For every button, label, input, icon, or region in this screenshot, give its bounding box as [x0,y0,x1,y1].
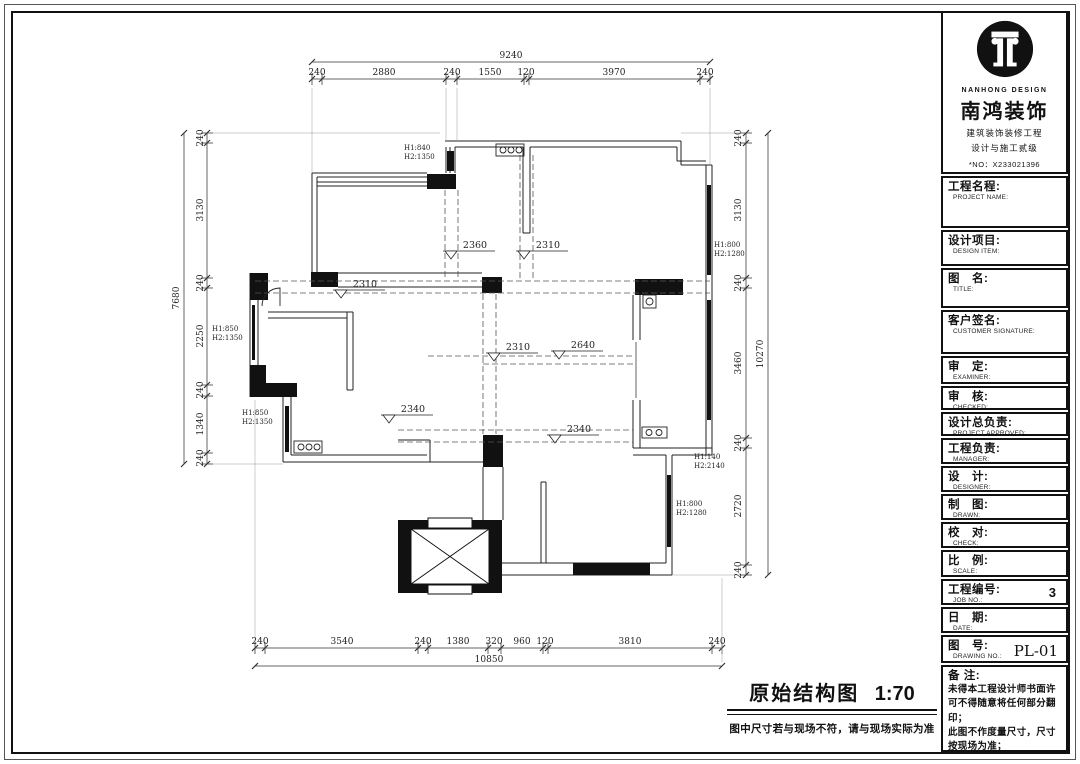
field-label-en: CHECKED: [948,404,1062,410]
field-label-cn: 工程名程: [948,181,1062,194]
dim: 1550 [479,68,502,78]
level-label: 2340 [401,404,425,415]
field-label-cn: 审 核: [948,391,1062,404]
field-label-cn: 设计总负责: [948,417,1062,430]
field-label-cn: 图 名: [948,273,1062,286]
field-label-en: PROJECT NAME: [948,194,1062,202]
fixtures [262,144,667,453]
dim: 3970 [603,68,626,78]
field-label-en: SCALE: [948,568,1062,576]
field-label-cn: 工程编号: [948,584,1062,597]
drawing-title: 原始结构图 1:70 [727,677,937,706]
job-no-value: 3 [1049,585,1056,600]
level-markers: 2360 2310 2310 2310 2640 2340 2340 [333,240,603,443]
cooktop-icon [294,441,322,453]
level-label: 2340 [567,424,591,435]
elevator-shaft [398,518,502,594]
field-label-cn: 客户签名: [948,315,1062,328]
company-logo-box: NANHONG DESIGN 南鸿装饰 建筑装饰装修工程 设计与施工贰级 *NO… [941,11,1068,174]
field-label-cn: 工程负责: [948,443,1062,456]
field-label-cn: 设 计: [948,471,1062,484]
floor-plan: 2360 2310 2310 2310 2640 2340 2340 H1:84… [0,0,1080,764]
dim: 2250 [196,324,206,347]
dim: 240 [414,637,431,647]
level-label: 2310 [536,240,560,251]
height-label: H1:850 [212,325,238,333]
field-check: 校 对: CHECK: [941,522,1068,548]
field-label-en: EXAMINER: [948,374,1062,382]
level-label: 2310 [506,342,530,353]
company-name-en: NANHONG DESIGN [945,87,1064,94]
dim: 240 [196,274,206,291]
field-label-cn: 审 定: [948,361,1062,374]
field-label-cn: 校 对: [948,527,1062,540]
field-job-no: 工程编号: JOB NO.: 3 [941,579,1068,605]
dim: 3130 [196,198,206,221]
field-label-en: MANAGER: [948,456,1062,464]
stove-icon [496,144,524,156]
dim-total-bottom: 10850 [475,655,504,665]
basin-icon [642,427,667,438]
dim: 3810 [619,637,642,647]
dim-total-right: 10270 [756,339,766,368]
height-labels: H1:840 H2:1350 H1:800 H2:1280 H1:850 H2:… [212,144,745,517]
field-drawing-no: 图 号: DRAWING NO.: PL-01 [941,635,1068,663]
field-label-en: DRAWN: [948,512,1062,520]
field-label-en: CHECK: [948,540,1062,548]
dim: 240 [308,68,325,78]
dim: 2880 [373,68,396,78]
field-date: 日 期: DATE: [941,607,1068,633]
field-project-approved: 设计总负责: PROJECT APPROVED: [941,412,1068,436]
dim: 240 [734,274,744,291]
dim: 240 [196,381,206,398]
field-checked: 审 核: CHECKED: [941,386,1068,410]
dim: 240 [196,449,206,466]
field-drawn: 制 图: DRAWN: [941,494,1068,520]
dim: 3130 [734,198,744,221]
company-line1: 建筑装饰装修工程 [945,127,1064,139]
dashed-beam-lines [255,155,710,442]
field-label-cn: 设计项目: [948,235,1062,248]
title-underline [727,709,937,715]
company-line2: 设计与施工贰级 [945,142,1064,154]
field-title: 图 名: TITLE: [941,268,1068,308]
field-label-en: PROJECT APPROVED: [948,430,1062,436]
dim: 240 [696,68,713,78]
concrete-columns [250,151,711,575]
dim: 1340 [196,412,206,435]
field-label-en: TITLE: [948,286,1062,294]
dim: 240 [734,561,744,578]
field-label-cn: 日 期: [948,612,1062,625]
field-label-cn: 制 图: [948,499,1062,512]
dim: 240 [196,129,206,146]
height-label: H1:840 [404,144,430,152]
level-label: 2640 [571,340,595,351]
field-customer-signature: 客户签名: CUSTOMER SIGNATURE: [941,310,1068,354]
level-label: 2310 [353,279,377,290]
notes-box: 备 注: 未得本工程设计师书面许可不得随意将任何部分翻印； 此图不作度量尺寸，尺… [941,665,1068,752]
wall-lines [250,141,712,575]
height-label: H1:800 [676,500,702,508]
height-label: H1:140 [694,453,720,461]
field-scale: 比 例: SCALE: [941,550,1068,577]
field-project-name: 工程名程: PROJECT NAME: [941,176,1068,228]
dim: 1380 [447,637,470,647]
field-label-en: DESIGN ITEM: [948,248,1062,256]
company-license-no: *NO：X233021396 [945,159,1064,170]
height-label: H2:1350 [242,418,273,426]
field-label-en: CUSTOMER SIGNATURE: [948,328,1062,336]
field-manager: 工程负责: MANAGER: [941,438,1068,464]
drawing-title-text: 原始结构图 [749,683,859,705]
height-label: H2:1280 [714,250,745,258]
dim-total-left: 7680 [172,286,182,309]
drawing-no-value: PL-01 [1014,642,1058,660]
notes-label: 备 注: [948,670,1062,683]
dim: 240 [251,637,268,647]
field-label-cn: 比 例: [948,555,1062,568]
dim: 2720 [734,494,744,517]
height-label: H2:1350 [212,334,243,342]
dim: 3460 [734,351,744,374]
field-label-en: DATE: [948,625,1062,633]
dim: 120 [536,637,553,647]
drawing-note: 图中尺寸若与现场不符，请与现场实际为准 [727,721,937,736]
dim: 240 [443,68,460,78]
field-designer: 设 计: DESIGNER: [941,466,1068,492]
title-block-column: NANHONG DESIGN 南鸿装饰 建筑装饰装修工程 设计与施工贰级 *NO… [941,11,1068,752]
dim: 960 [513,637,530,647]
dim: 240 [734,434,744,451]
height-label: H2:1280 [676,509,707,517]
drawing-sheet: { "logo": { "en": "NANHONG DESIGN", "cn"… [0,0,1080,764]
dim-total-top: 9240 [500,51,523,61]
height-label: H1:800 [714,241,740,249]
note-line: 未得本工程设计师书面许可不得随意将任何部分翻印； [948,683,1062,726]
field-label-en: DESIGNER: [948,484,1062,492]
washer-icon [643,295,656,308]
field-label-en: JOB NO.: [948,597,1062,605]
dim: 320 [485,637,502,647]
drawing-scale: 1:70 [875,683,915,705]
dim: 240 [734,129,744,146]
dim: 3540 [331,637,354,647]
height-label: H2:2140 [694,462,725,470]
company-logo-icon [975,19,1035,79]
company-name-cn: 南鸿装饰 [945,95,1064,124]
dim: 240 [708,637,725,647]
height-label: H2:1350 [404,153,435,161]
dim: 120 [517,68,534,78]
field-design-item: 设计项目: DESIGN ITEM: [941,230,1068,266]
note-line: 此图不作度量尺寸，尺寸按现场为准； [948,726,1062,752]
drawing-title-block: 原始结构图 1:70 图中尺寸若与现场不符，请与现场实际为准 [727,677,937,736]
field-examiner: 审 定: EXAMINER: [941,356,1068,384]
level-label: 2360 [463,240,487,251]
